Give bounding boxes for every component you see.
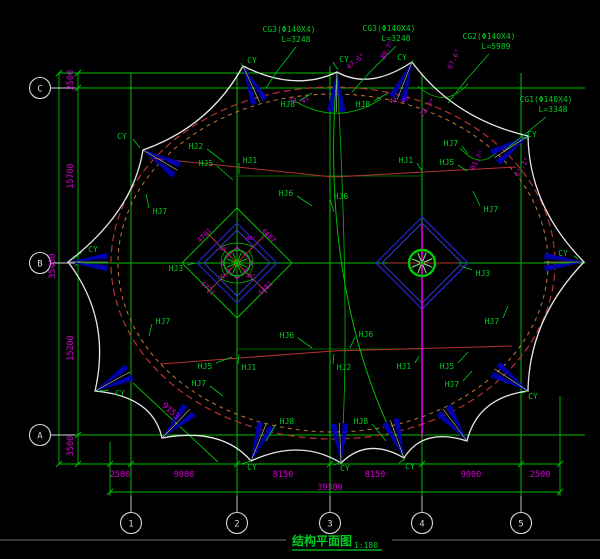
dim-text-bottom: 9000 [174, 470, 194, 480]
dim-text-bottom-total: 39300 [317, 483, 343, 493]
member-label: HJ7 [444, 139, 459, 148]
cy-point-label: CY [528, 392, 538, 401]
dim-text-left: 15700 [66, 163, 76, 189]
grid-bubble-row-label: C [37, 85, 42, 95]
grid-bubble-col-label: 2 [234, 520, 239, 530]
grid-bubble-col-label: 1 [128, 520, 133, 530]
dim-text-left: 15200 [66, 335, 76, 361]
dim-text-bottom: 8150 [365, 470, 385, 480]
dim-text-bottom: 2500 [530, 470, 550, 480]
member-label: HJ6 [334, 192, 349, 201]
grid-bubble-col-label: 5 [518, 520, 523, 530]
cy-point-label: CY [558, 249, 568, 258]
mast-inner-angle: 46° [246, 236, 256, 242]
cy-point-label: CY [247, 56, 257, 65]
mast-center-dot [420, 261, 423, 264]
member-label: HJ1 [399, 156, 414, 165]
member-label: HJ5 [198, 362, 213, 371]
drawing-background [0, 0, 600, 559]
cy-point-label: CY [405, 462, 415, 471]
drawing-title: 结构平面图 [292, 533, 352, 548]
angle-label: 47.4° [388, 97, 409, 105]
cy-point-label: CY [115, 389, 125, 398]
cable-note-line2: L=3248 [382, 34, 411, 43]
member-label: HJ8 [354, 417, 369, 426]
mast-inner-angle: 42° [219, 274, 229, 280]
cy-point-label: CY [340, 464, 350, 473]
member-label: HJ5 [440, 158, 455, 167]
member-label: HJ7 [484, 205, 499, 214]
member-label: HJ3 [476, 269, 491, 278]
mast-inner-angle: 47° [246, 274, 256, 280]
cad-structural-plan: 12345CBA 2500900081508150900025003930025… [0, 0, 600, 559]
member-label: HJ7 [156, 317, 171, 326]
dim-text-left: 2500 [66, 70, 76, 90]
cable-note-line1: CG3(Φ140X4) [263, 25, 316, 34]
member-label: HJ5 [440, 362, 455, 371]
cy-point-label: CY [397, 53, 407, 62]
member-label: HJ7 [153, 207, 168, 216]
member-label: HJ1 [243, 156, 258, 165]
grid-bubble-col-label: 4 [419, 520, 424, 530]
grid-bubble-row-label: B [37, 260, 42, 270]
member-label: HJ8 [280, 417, 295, 426]
cable-note-line1: CG2(Φ140X4) [463, 32, 516, 41]
member-label: HJ6 [279, 189, 294, 198]
grid-bubble-row-label: A [37, 432, 43, 442]
member-label: HJ7 [485, 317, 500, 326]
member-label: HJ1 [397, 362, 412, 371]
mast-center-dot [235, 261, 238, 264]
member-label: HJ6 [359, 330, 374, 339]
dim-text-left: 3500 [66, 436, 76, 456]
cy-point-label: CY [117, 132, 127, 141]
dim-text-left-total: 35400 [48, 253, 58, 279]
mast-inner-angle: 43° [219, 247, 229, 253]
cable-note-line2: L=3348 [539, 105, 568, 114]
cy-point-label: CY [247, 463, 257, 472]
dim-text-bottom: 2500 [110, 470, 130, 480]
member-label: HJ3 [169, 264, 184, 273]
dim-text-bottom: 8150 [273, 470, 293, 480]
grid-bubble-col-label: 3 [327, 520, 332, 530]
cable-note-line2: L=3248 [282, 35, 311, 44]
member-label: HJ6 [280, 331, 295, 340]
cy-point-label: CY [88, 245, 98, 254]
cable-note-line2: L=5989 [482, 42, 511, 51]
member-label: HJ2 [189, 142, 204, 151]
member-label: HJ5 [199, 159, 214, 168]
member-label: HJ7 [445, 380, 460, 389]
dim-text-bottom: 9000 [461, 470, 481, 480]
drawing-scale: 1:180 [354, 541, 378, 550]
cy-point-label: CY [527, 130, 537, 139]
cable-note-line1: CG3(Φ140X4) [363, 24, 416, 33]
member-label: HJ1 [242, 363, 257, 372]
cable-note-line1: CG1(Φ140X4) [520, 95, 573, 104]
angle-label: 42.4° [288, 97, 309, 105]
member-label: HJ2 [337, 363, 352, 372]
member-label: HJ7 [192, 379, 207, 388]
member-label: HJ8 [356, 100, 371, 109]
plan-svg: 12345CBA 2500900081508150900025003930025… [0, 0, 600, 559]
